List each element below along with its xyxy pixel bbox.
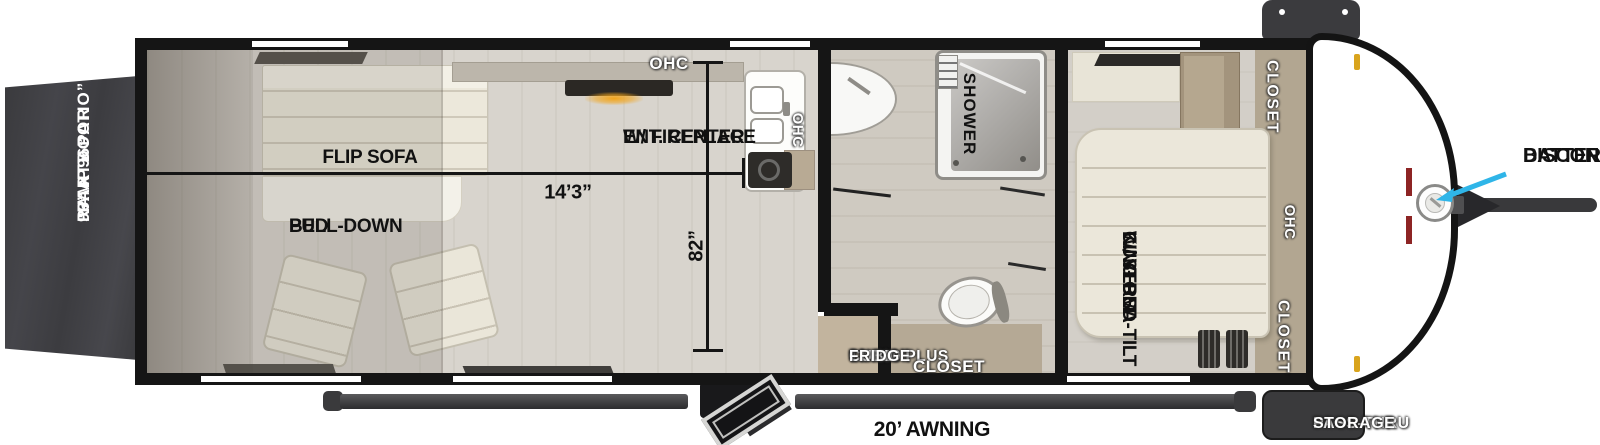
shower-drain-icon-2	[1020, 156, 1026, 162]
bedroom-overhead-cabinet-strip	[1094, 54, 1190, 66]
floorplan-canvas: 96” X 96” RAMP DOOR “PARTY PATIO”	[0, 0, 1600, 445]
bedroom-closet-top-label: CLOSET	[1263, 60, 1280, 134]
shower-shelf	[938, 55, 958, 89]
battery-arrow-icon	[1432, 166, 1512, 208]
wall-opening-marker	[201, 376, 361, 382]
hitch-red-mark-2	[1406, 216, 1412, 244]
bed-step-1	[1198, 330, 1220, 368]
pass-thru-label-line2: STORAGE	[1313, 414, 1395, 433]
wall-opening-marker	[1105, 41, 1200, 47]
fridge-label-line3: FRIDGE	[849, 348, 911, 366]
clearance-light-top	[1354, 54, 1360, 70]
bedroom-closet-bottom-label: CLOSET	[1274, 300, 1291, 374]
length-dimension-line	[146, 172, 744, 175]
bedroom-wall	[1055, 50, 1068, 373]
shower-drain-icon	[953, 160, 959, 166]
wall-opening-marker	[730, 41, 810, 47]
awning-label: 20’ AWNING	[874, 419, 990, 441]
shower-label: SHOWER	[960, 73, 978, 156]
overhead-cabinet	[452, 62, 744, 82]
bathroom-wall	[818, 50, 831, 312]
roof-spoiler	[1262, 0, 1360, 40]
bedroom-ohc-label: OHC	[1281, 205, 1297, 240]
awning-arm-right	[1234, 391, 1256, 412]
width-dimension-label: 82”	[686, 230, 707, 261]
king-bed-label-line3: W/ VERSA-TILT	[1118, 231, 1139, 366]
length-dimension-label: 14’3”	[544, 182, 591, 203]
awning-rail-left	[340, 394, 688, 409]
flip-sofa-label: FLIP SOFA	[322, 148, 417, 168]
hitch-red-mark-1	[1406, 168, 1412, 196]
sink-basin-top	[750, 86, 784, 114]
wall-opening-marker	[252, 41, 348, 47]
king-bed-seams	[1082, 140, 1266, 326]
spoiler-bolt-icon	[1279, 9, 1285, 15]
wall-opening-marker	[1067, 376, 1190, 382]
fridge-nook-wall-2	[878, 316, 891, 376]
width-dimension-end-bottom	[693, 349, 723, 352]
fridge-nook-wall	[824, 303, 898, 316]
clearance-light-bottom	[1354, 356, 1360, 372]
battery-disconnect-label-line2: DISCONNECT	[1523, 144, 1600, 169]
entertainment-center-label-line2: W/ FIREPLACE	[623, 128, 756, 148]
awning-rail-right	[795, 394, 1237, 409]
bathroom-closet-label: CLOSET	[913, 358, 985, 376]
pull-down-bed-label-line2: BED	[289, 216, 328, 237]
width-dimension-line	[706, 61, 709, 352]
ohc-label-top: OHC	[649, 55, 688, 73]
ramp-shadow-overlay	[147, 50, 253, 373]
fireplace-glow	[585, 92, 643, 105]
kitchen-ohc-label: OHC	[789, 113, 805, 148]
wall-opening-marker	[453, 376, 612, 382]
length-dimension-end-right	[742, 158, 745, 188]
trailer-wall-rear	[135, 38, 147, 385]
bedroom-wardrobe-face	[1184, 56, 1224, 128]
ramp-door-subtitle: “PARTY PATIO”	[72, 82, 95, 222]
spoiler-bolt-icon-2	[1342, 9, 1348, 15]
length-dimension-end-left	[141, 164, 147, 186]
bed-step-2	[1226, 330, 1248, 368]
cooktop-burner-icon	[758, 159, 780, 181]
width-dimension-end-top	[693, 61, 723, 64]
